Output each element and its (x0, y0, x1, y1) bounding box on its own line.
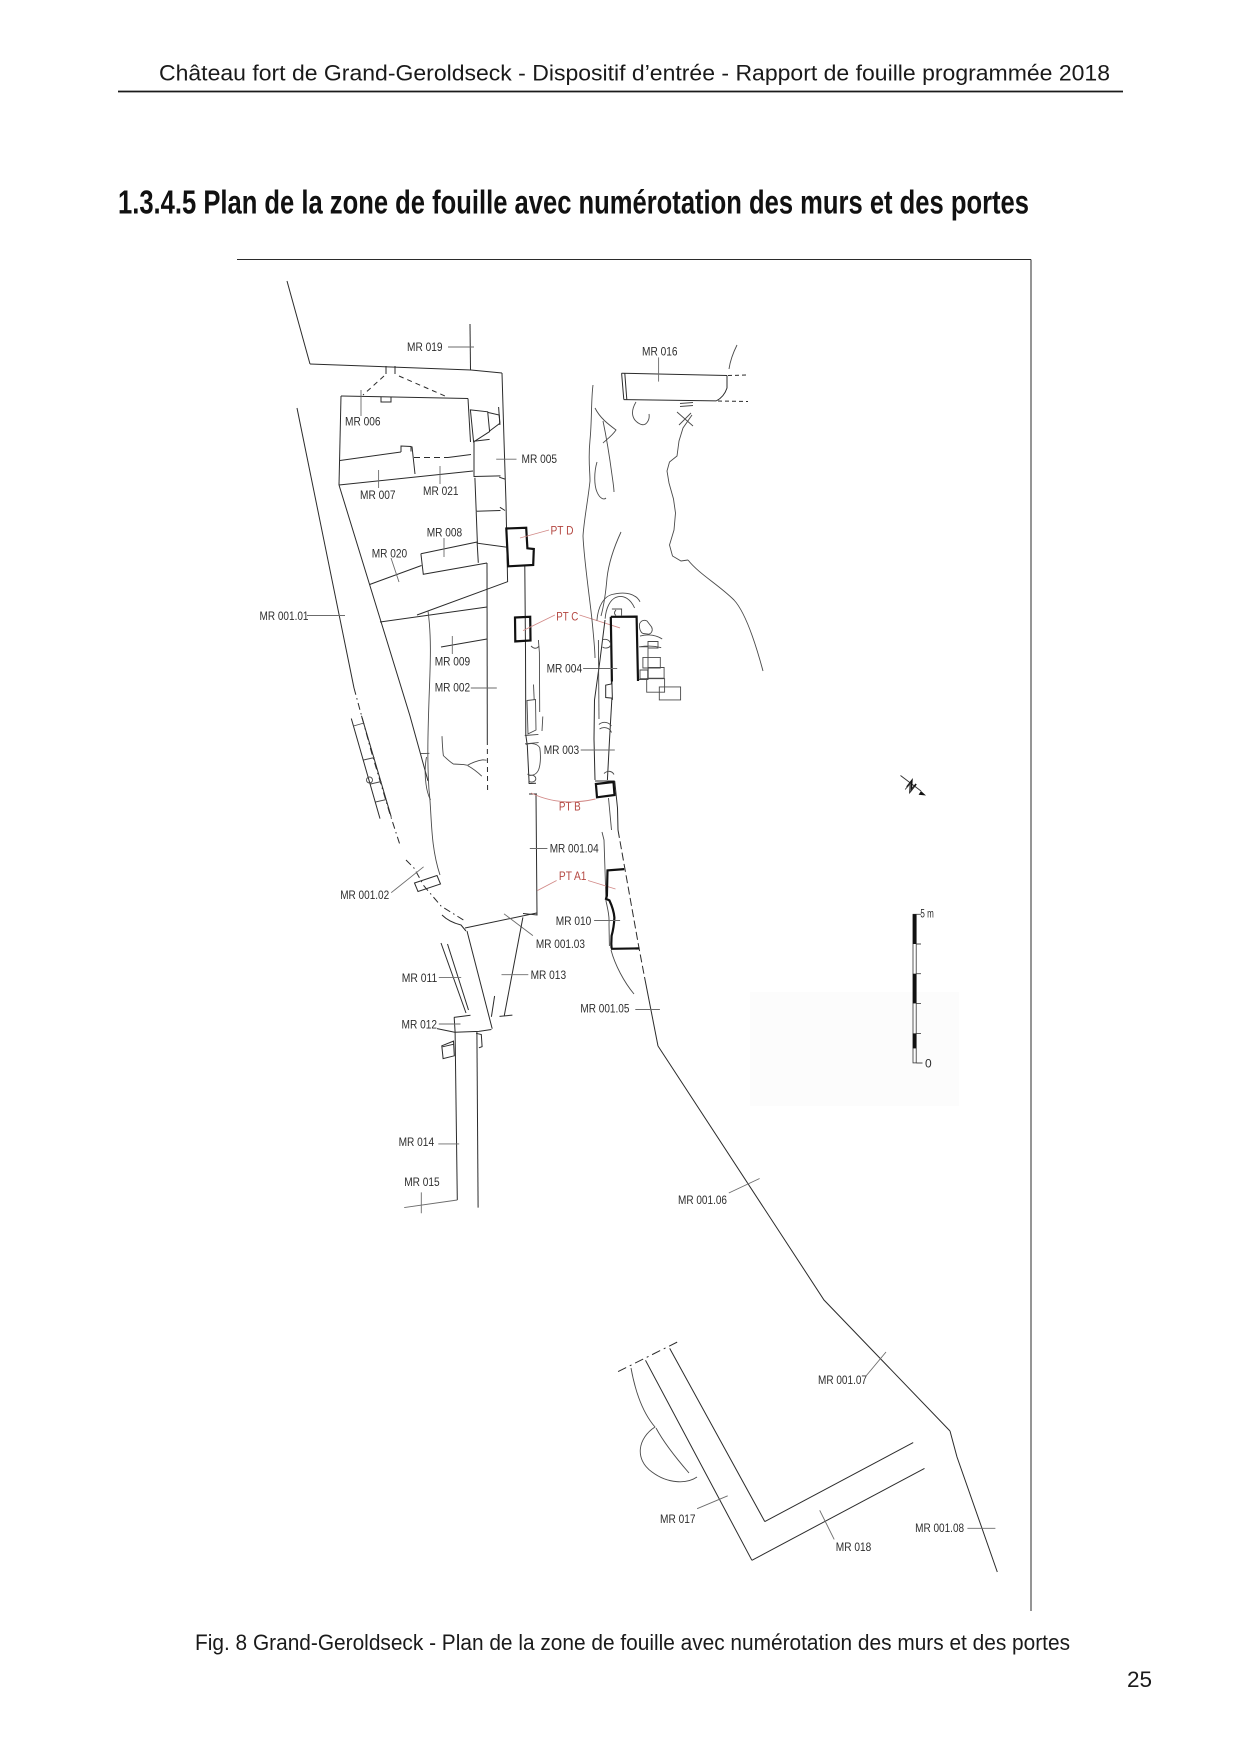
svg-text:1.3.4.5 Plan de la zone de fou: 1.3.4.5 Plan de la zone de fouille avec … (118, 184, 1029, 221)
svg-text:MR 008: MR 008 (427, 526, 463, 540)
svg-text:PT A1: PT A1 (559, 869, 587, 883)
svg-text:MR 011: MR 011 (402, 971, 438, 985)
svg-text:MR 001.08: MR 001.08 (915, 1521, 964, 1535)
svg-text:MR 001.01: MR 001.01 (260, 609, 309, 623)
svg-text:MR 010: MR 010 (556, 914, 592, 928)
svg-text:MR 001.07: MR 001.07 (818, 1373, 867, 1387)
svg-text:MR 021: MR 021 (423, 484, 459, 498)
svg-text:MR 019: MR 019 (407, 340, 443, 354)
svg-text:MR 009: MR 009 (435, 655, 471, 669)
svg-text:MR 001.02: MR 001.02 (340, 888, 389, 902)
svg-text:MR 001.03: MR 001.03 (536, 937, 585, 951)
svg-text:PT D: PT D (551, 524, 574, 538)
svg-text:MR 020: MR 020 (372, 547, 408, 561)
svg-text:MR 004: MR 004 (547, 662, 583, 676)
svg-text:MR 006: MR 006 (345, 415, 381, 429)
svg-text:25: 25 (1127, 1667, 1152, 1692)
svg-text:MR 005: MR 005 (522, 452, 558, 466)
svg-text:0: 0 (925, 1057, 932, 1071)
svg-text:MR 018: MR 018 (836, 1540, 872, 1554)
svg-text:MR 002: MR 002 (435, 681, 471, 695)
svg-text:MR 003: MR 003 (544, 743, 580, 757)
svg-text:MR 014: MR 014 (399, 1135, 435, 1149)
svg-text:PT C: PT C (556, 610, 578, 624)
svg-text:MR 007: MR 007 (360, 488, 396, 502)
svg-text:MR 013: MR 013 (531, 968, 567, 982)
svg-text:MR 012: MR 012 (402, 1018, 438, 1032)
svg-text:Fig. 8 Grand-Geroldseck - Plan: Fig. 8 Grand-Geroldseck - Plan de la zon… (195, 1630, 1070, 1655)
svg-text:MR 001.04: MR 001.04 (550, 842, 599, 856)
svg-text:MR 001.05: MR 001.05 (580, 1002, 629, 1016)
svg-text:MR 001.06: MR 001.06 (678, 1193, 727, 1207)
svg-text:MR 015: MR 015 (404, 1175, 440, 1189)
svg-text:MR 016: MR 016 (642, 345, 678, 359)
svg-text:Château fort de Grand-Geroldse: Château fort de Grand-Geroldseck - Dispo… (159, 61, 1110, 86)
svg-text:MR 017: MR 017 (660, 1512, 696, 1526)
svg-text:5 m: 5 m (920, 907, 933, 921)
